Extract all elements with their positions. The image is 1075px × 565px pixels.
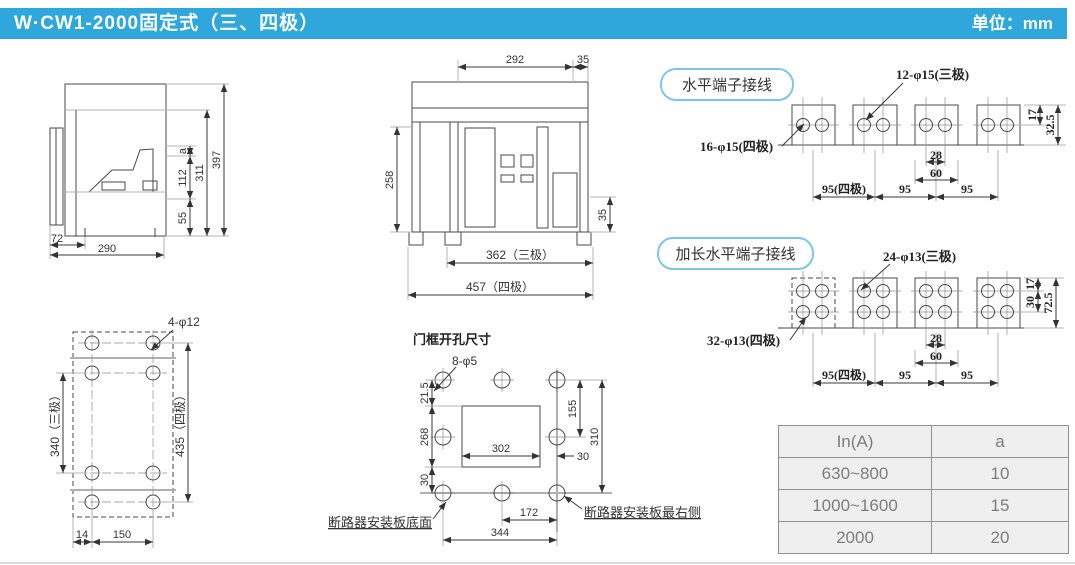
table-row: 630~800 10 (779, 458, 1069, 490)
dim-95-4p-label: 95(四极) (822, 181, 866, 196)
catalog-page: 397 311 a 112 55 72 290 (0, 0, 1075, 565)
dim-32-5-label: 32.5 (1043, 115, 1057, 136)
door-cutout-title: 门框开孔尺寸 (413, 332, 491, 347)
header-bar: W·CW1-2000固定式（三、四极） 单位：mm (0, 8, 1067, 39)
table-row: 1000~1600 15 (779, 490, 1069, 522)
note-plate-bottom-label: 断路器安装板底面 (328, 515, 432, 530)
current-rating-table: In(A) a 630~800 10 1000~1600 15 2000 20 (778, 425, 1069, 554)
dim-268-label: 268 (419, 428, 431, 446)
dim-28-ext-label: 28 (930, 331, 942, 345)
dim-290-label: 290 (98, 243, 116, 255)
dim-155-label: 155 (567, 400, 579, 418)
page-title: W·CW1-2000固定式（三、四极） (14, 8, 319, 39)
dim-311-label: 311 (194, 164, 206, 182)
horizontal-terminal-label-pill: 水平端子接线 (660, 68, 794, 101)
callout-12-phi15-label: 12-φ15(三极) (896, 67, 969, 82)
callout-8-phi5-label: 8-φ5 (452, 354, 477, 368)
dim-17-ext-label: 17 (1023, 278, 1037, 290)
dim-60-ext-label: 60 (930, 349, 942, 363)
front-view: 292 35 258 35 362（三极） 457（四极） (384, 54, 616, 300)
dim-302-label: 302 (492, 443, 510, 455)
extended-terminal-label: 加长水平端子接线 (675, 243, 795, 264)
callout-32-phi13-label: 32-φ13(四极) (707, 333, 780, 348)
callout-4-phi12-label: 4-φ12 (168, 315, 200, 329)
dim-95-mid-ext-label: 95 (899, 368, 911, 382)
dim-14-label: 14 (76, 529, 88, 541)
table-cell-in: 630~800 (779, 458, 932, 490)
table-header-a: a (932, 426, 1069, 458)
dim-435-label: 435（四极） (173, 389, 187, 457)
table-cell-in: 1000~1600 (779, 490, 932, 522)
table-cell-in: 2000 (779, 522, 932, 554)
dim-30-left-label: 30 (419, 474, 431, 486)
page-bottom-divider (0, 562, 1075, 564)
table-header-in: In(A) (779, 426, 932, 458)
callout-24-phi13-label: 24-φ13(三极) (883, 249, 956, 264)
side-view: 397 311 a 112 55 72 290 (50, 84, 229, 259)
dim-457-label: 457（四极） (466, 280, 534, 294)
dim-258-label: 258 (384, 171, 396, 189)
dim-72-5-label: 72.5 (1041, 293, 1055, 314)
dim-172-label: 172 (520, 507, 538, 519)
dim-95-mid-label: 95 (899, 182, 911, 196)
dim-30-ext-label: 30 (1023, 296, 1037, 308)
dim-28-label: 28 (930, 148, 942, 162)
callout-16-phi15-label: 16-φ15(四极) (700, 139, 773, 154)
table-cell-a: 10 (932, 458, 1069, 490)
dim-310-label: 310 (589, 428, 601, 446)
table-header-row: In(A) a (779, 426, 1069, 458)
dim-35-right-label: 35 (597, 209, 609, 221)
dim-95-right-label: 95 (961, 182, 973, 196)
dim-292-label: 292 (506, 54, 524, 66)
dim-95-4p-ext-label: 95(四极) (822, 367, 866, 382)
dim-a-label: a (177, 147, 189, 154)
dim-112-label: 112 (177, 169, 189, 187)
unit-label: 单位：mm (972, 8, 1053, 39)
dim-150-label: 150 (113, 529, 131, 541)
dim-35-top-label: 35 (577, 54, 589, 66)
door-cutout-drawing: 门框开孔尺寸 (328, 332, 701, 546)
table-row: 2000 20 (779, 522, 1069, 554)
dim-17-label: 17 (1025, 109, 1039, 121)
dim-55-label: 55 (177, 212, 189, 224)
table-cell-a: 15 (932, 490, 1069, 522)
mounting-plate-drawing: 4-φ12 340（三极） 435（四极） 14 150 (48, 315, 200, 548)
dim-30-right-label: 30 (577, 451, 589, 463)
dim-60-label: 60 (930, 166, 942, 180)
extended-terminal-label-pill: 加长水平端子接线 (657, 237, 814, 270)
horizontal-terminal-label: 水平端子接线 (682, 74, 772, 95)
table-cell-a: 20 (932, 522, 1069, 554)
dim-72-label: 72 (51, 233, 63, 245)
note-plate-rightmost-label: 断路器安装板最右侧 (584, 505, 701, 520)
dim-362-label: 362（三极） (486, 248, 554, 262)
dim-95-right-ext-label: 95 (961, 368, 973, 382)
dim-344-label: 344 (491, 527, 509, 539)
dim-397-label: 397 (211, 151, 223, 169)
dim-21-5-label: 21.5 (419, 382, 431, 403)
dim-340-label: 340（三极） (48, 389, 62, 457)
